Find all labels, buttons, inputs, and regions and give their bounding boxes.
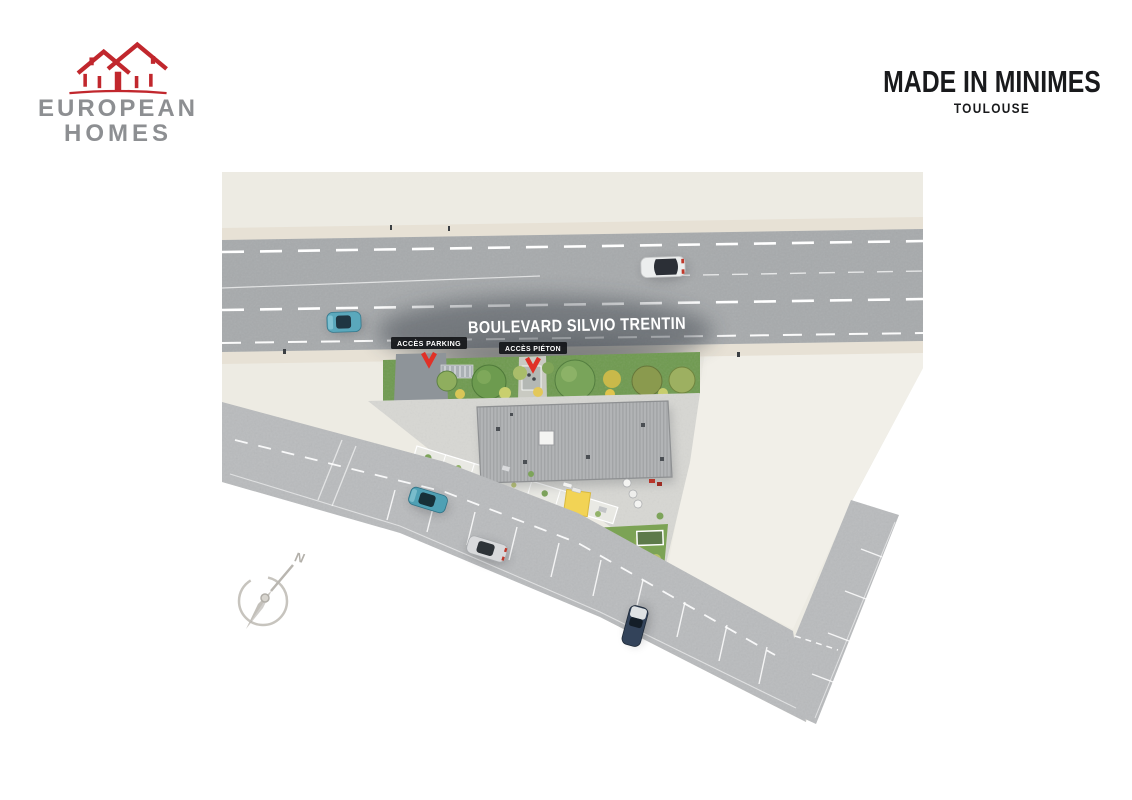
building-roof bbox=[477, 401, 675, 489]
poster-page: EUROPEAN HOMES MADE IN MINIMES TOULOUSE bbox=[0, 0, 1132, 800]
access-parking-text: ACCÈS PARKING bbox=[397, 339, 461, 348]
roof-skylight bbox=[539, 431, 554, 445]
compass: N bbox=[239, 549, 306, 629]
site-plan-rendering: BOULEVARD SILVIO TRENTIN bbox=[0, 0, 1132, 800]
compass-north-label: N bbox=[293, 549, 306, 566]
garden-shed bbox=[637, 531, 663, 546]
access-pedestrian-text: ACCÈS PIÉTON bbox=[505, 344, 561, 353]
